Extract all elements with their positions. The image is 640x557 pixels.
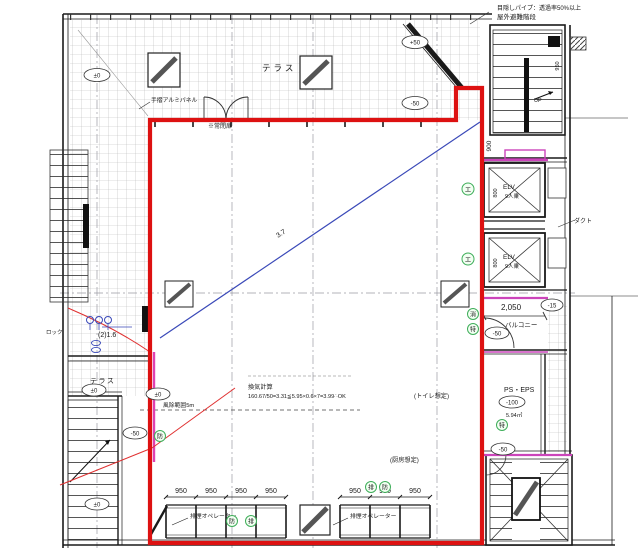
svg-text:防: 防 (157, 433, 163, 441)
balcony-label: バルコニー (505, 321, 537, 329)
terrace-label-top: テラス (262, 63, 296, 73)
badge-elevator: エ (462, 183, 474, 195)
dim-800-2: 800 (493, 258, 499, 267)
svg-text:+50: +50 (410, 41, 421, 47)
svg-text:-50: -50 (499, 448, 508, 454)
closed-door-label: ※常閉扉 (208, 122, 232, 130)
svg-text:排: 排 (248, 518, 254, 526)
balcony-strip-hatch (548, 300, 567, 452)
lock-label: ロック (46, 329, 63, 336)
elv-capacity-1: 9人乗 (505, 193, 520, 200)
svg-text:排: 排 (368, 484, 374, 492)
svg-text:-50: -50 (493, 332, 502, 338)
fire-boundary-red (150, 88, 482, 543)
dim-950: 950 (349, 488, 361, 495)
dim-900: 900 (486, 140, 493, 151)
badge-fire: 防 (155, 431, 166, 442)
svg-text:-100: -100 (506, 401, 519, 407)
dim-950: 950 (409, 488, 421, 495)
svg-text:-50: -50 (131, 432, 140, 438)
duct-shaft (548, 168, 566, 198)
ps-area-label: 5.94㎡ (506, 411, 523, 419)
level-oval-zero: ±0 (85, 498, 109, 510)
svg-text:-50: -50 (411, 102, 420, 108)
ps-eps-label: PS・EPS (504, 387, 535, 394)
svg-text:エ: エ (465, 257, 472, 264)
svg-text:防: 防 (382, 484, 388, 492)
column (441, 281, 469, 307)
badge-smoke: 排 (366, 482, 377, 493)
toilet-note: (トイレ想定) (414, 392, 449, 400)
green-badges: エ エ 消 特 特 防 防 排 排 防 (155, 183, 508, 527)
svg-text:消: 消 (470, 311, 476, 319)
level-oval-zero: ±0 (146, 388, 170, 400)
column (165, 281, 193, 307)
svg-text:±0: ±0 (94, 74, 101, 80)
dim-950: 950 (235, 488, 247, 495)
dim-950: 950 (265, 488, 277, 495)
floor-plan-drawing: 目隠しパイプ：透過率50%以上 屋外避難階段 テラス テラス 手摺アルミパネル … (0, 0, 640, 557)
level-oval-minus50: -50 (485, 327, 509, 339)
svg-text:エ: エ (465, 187, 472, 194)
badge-special: 特 (468, 324, 479, 335)
level-oval-zero: ±0 (82, 384, 106, 396)
bottom-right-stair (486, 455, 572, 545)
elv-label-2: ELV (503, 254, 515, 261)
duct-label: ダクト (574, 217, 592, 225)
svg-text:防: 防 (229, 518, 235, 526)
dim-950: 950 (205, 488, 217, 495)
dim-800-1: 800 (493, 188, 499, 197)
level-oval-plus50: +50 (402, 36, 428, 49)
badge-fire-hydrant: 消 (468, 309, 479, 320)
left-exterior-stair (50, 150, 89, 302)
column (300, 56, 332, 89)
level-oval-minus50: -50 (491, 443, 515, 455)
badge-special: 特 (497, 420, 508, 431)
level-oval-minus15: -15 (541, 299, 563, 311)
outdoor-stair-note: 屋外避難階段 (497, 12, 537, 21)
svg-text:±0: ±0 (155, 393, 162, 399)
dim-950-stair: 950 (555, 61, 561, 70)
elv-capacity-2: 9人乗 (505, 263, 520, 270)
svg-text:±0: ±0 (94, 503, 101, 509)
duct-shaft (548, 238, 566, 268)
blind-pipe-note: 目隠しパイプ：透過率50%以上 (497, 4, 581, 12)
vent-calc-formula: 160.67/50=3.31≦5.95×0.6×7=3.99∴OK (248, 394, 346, 400)
handrail-panel-label: 手摺アルミパネル (151, 96, 198, 104)
blue-note-label: (2)1.6 (98, 332, 116, 339)
kitchen-note: (厨房想定) (390, 456, 419, 464)
floor-plan-canvas: 目隠しパイプ：透過率50%以上 屋外避難階段 テラス テラス 手摺アルミパネル … (0, 0, 640, 557)
up-label: UP (534, 98, 542, 104)
svg-text:-15: -15 (548, 304, 557, 310)
badge-elevator: エ (462, 253, 474, 265)
column (300, 505, 330, 535)
elv-label-1: ELV (503, 184, 515, 191)
svg-text:特: 特 (499, 422, 505, 430)
smoke-operator-label-right: 排煙オペレーター (350, 512, 397, 520)
svg-text:特: 特 (470, 326, 476, 334)
level-oval-minus50: -50 (402, 97, 428, 110)
wind-range-label: 風除範囲5m (163, 401, 194, 409)
badge-smoke: 排 (246, 516, 257, 527)
level-oval-minus50: -50 (123, 427, 147, 439)
dim-950: 950 (175, 488, 187, 495)
level-oval-minus100: -100 (499, 396, 525, 408)
outdoor-evacuation-stair (490, 25, 565, 135)
vent-calc-title: 換気計算 (248, 383, 273, 391)
slope-label: 3.7 (275, 228, 287, 239)
badge-fire: 防 (380, 482, 391, 493)
column (148, 53, 180, 87)
level-oval-zero: ±0 (84, 69, 110, 82)
dim-2050: 2,050 (501, 303, 522, 312)
svg-text:±0: ±0 (91, 389, 98, 395)
elevator-bank (482, 158, 575, 290)
badge-fire: 防 (227, 516, 238, 527)
